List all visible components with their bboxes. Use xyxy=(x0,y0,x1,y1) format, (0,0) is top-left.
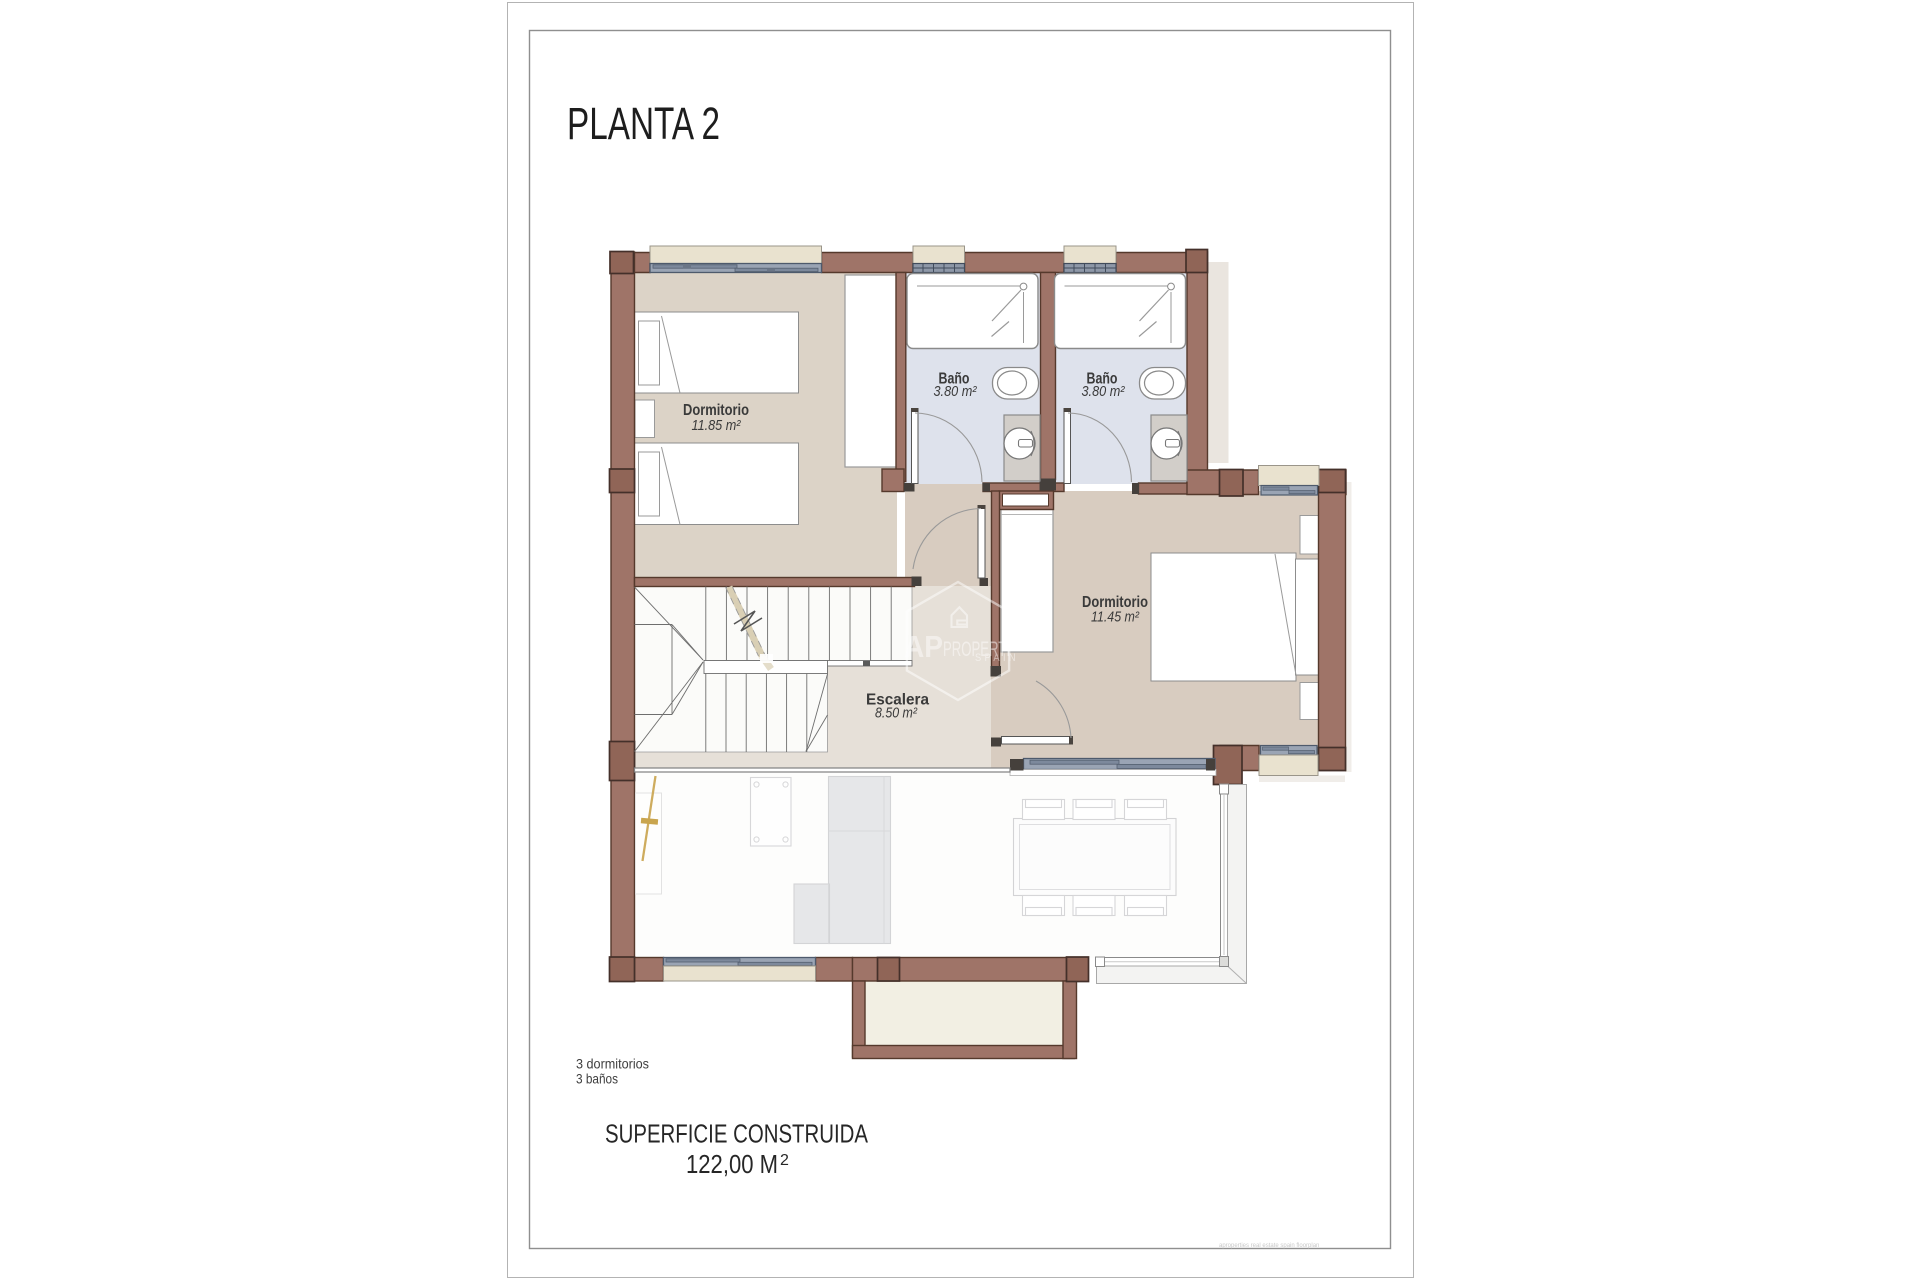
svg-text:3.80 m²: 3.80 m² xyxy=(934,384,978,400)
svg-text:aproperties real estate spain: aproperties real estate spain floorplan xyxy=(1219,1243,1319,1249)
svg-text:SPAIN: SPAIN xyxy=(975,652,1019,664)
svg-text:8.50 m²: 8.50 m² xyxy=(875,706,918,722)
svg-text:3 baños: 3 baños xyxy=(576,1071,618,1087)
svg-text:AP: AP xyxy=(904,629,943,664)
svg-text:Dormitorio: Dormitorio xyxy=(683,402,749,419)
svg-text:11.85 m²: 11.85 m² xyxy=(692,418,742,434)
svg-text:3 dormitorios: 3 dormitorios xyxy=(576,1056,649,1072)
svg-text:11.45 m²: 11.45 m² xyxy=(1091,610,1140,626)
svg-text:3.80 m²: 3.80 m² xyxy=(1082,384,1126,400)
svg-text:2: 2 xyxy=(780,1152,789,1169)
svg-text:PLANTA 2: PLANTA 2 xyxy=(567,98,720,149)
svg-text:Dormitorio: Dormitorio xyxy=(1082,594,1148,611)
svg-text:122,00 M: 122,00 M xyxy=(686,1149,778,1179)
svg-text:SUPERFICIE CONSTRUIDA: SUPERFICIE CONSTRUIDA xyxy=(605,1119,869,1149)
